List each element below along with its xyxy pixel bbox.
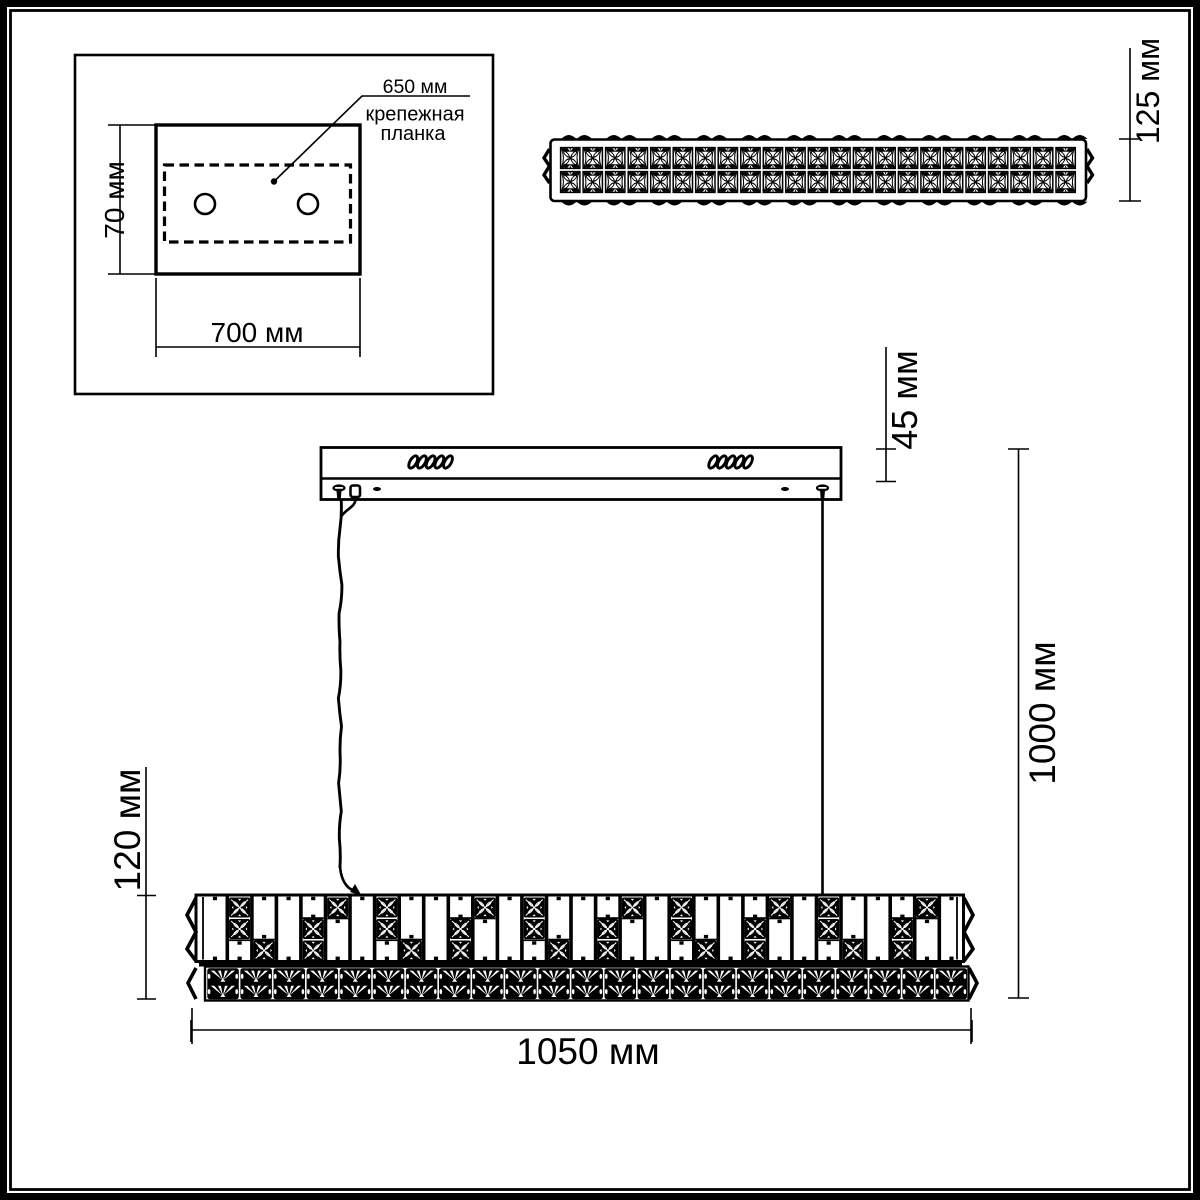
svg-text:1000 мм: 1000 мм [1022, 641, 1063, 784]
svg-text:планка: планка [381, 123, 447, 145]
svg-text:1050 мм: 1050 мм [516, 1031, 659, 1072]
svg-text:650 мм: 650 мм [383, 76, 448, 98]
svg-text:70 мм: 70 мм [99, 161, 130, 238]
svg-text:120 мм: 120 мм [107, 769, 148, 892]
svg-text:45 мм: 45 мм [884, 350, 925, 450]
svg-text:125 мм: 125 мм [1130, 38, 1166, 144]
svg-text:700 мм: 700 мм [211, 317, 304, 348]
